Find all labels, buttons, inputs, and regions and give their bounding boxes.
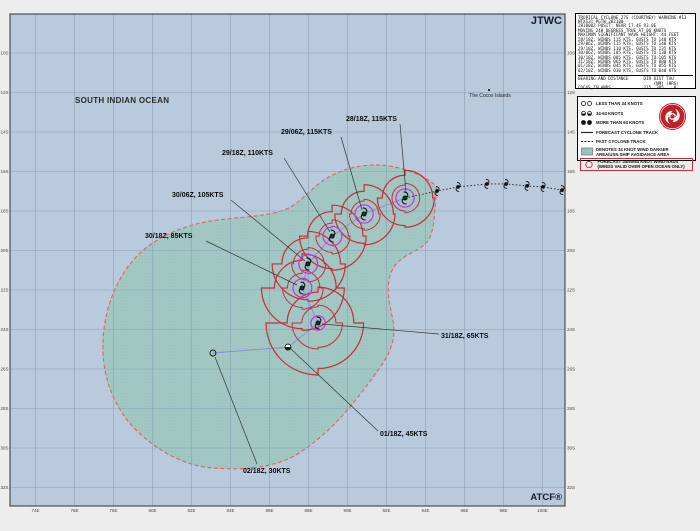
svg-text:26S: 26S bbox=[0, 367, 8, 372]
forecast-label-29/18Z: 29/18Z, 110KTS bbox=[222, 150, 273, 157]
forecast-label-29/06Z: 29/06Z, 115KTS bbox=[281, 129, 332, 136]
half-circles-icon bbox=[580, 109, 594, 118]
svg-text:22S: 22S bbox=[0, 288, 8, 293]
svg-text:10S: 10S bbox=[567, 51, 575, 56]
legend-item-label: PAST CYCLONE TRACK bbox=[596, 139, 646, 144]
svg-text:18S: 18S bbox=[0, 209, 8, 214]
forecast-label-28/18Z: 28/18Z, 115KTS bbox=[346, 116, 397, 123]
svg-text:22S: 22S bbox=[567, 288, 575, 293]
warning-lines: TROPICAL CYCLONE 27S (COURTNEY) WARNING … bbox=[578, 16, 693, 74]
jtwc-watermark: JTWC bbox=[505, 15, 562, 27]
warning-text-box: TROPICAL CYCLONE 27S (COURTNEY) WARNING … bbox=[575, 13, 696, 89]
open-circles-icon bbox=[580, 99, 594, 108]
jtwc-warning-graphic: { "map_overlays": { "jtwc": "JTWC", "atc… bbox=[0, 0, 700, 531]
filled-circles-icon bbox=[580, 118, 594, 127]
svg-text:14S: 14S bbox=[567, 130, 575, 135]
svg-text:30S: 30S bbox=[0, 446, 8, 451]
bearing-distance-lines: BEARING AND DISTANCE DIR DIST TAU (NM) (… bbox=[578, 77, 693, 90]
svg-text:24S: 24S bbox=[0, 327, 8, 332]
svg-text:86E: 86E bbox=[265, 508, 273, 513]
svg-text:82E: 82E bbox=[187, 508, 195, 513]
legend-item-label: DENOTES 34 KNOT WIND DANGER AREA/USN SHI… bbox=[596, 147, 669, 157]
jtwc-seal-icon bbox=[658, 102, 687, 131]
svg-text:88E: 88E bbox=[304, 508, 312, 513]
hatched-box-icon bbox=[580, 147, 594, 156]
svg-text:24S: 24S bbox=[567, 327, 575, 332]
svg-text:74E: 74E bbox=[31, 508, 39, 513]
legend-item-label: MORE THAN 63 KNOTS bbox=[596, 120, 644, 125]
svg-text:90E: 90E bbox=[343, 508, 351, 513]
svg-text:20S: 20S bbox=[567, 248, 575, 253]
svg-text:28S: 28S bbox=[567, 406, 575, 411]
forecast-label-01/18Z: 01/18Z, 45KTS bbox=[380, 431, 428, 438]
svg-text:96E: 96E bbox=[460, 508, 468, 513]
legend-item-label: FORECAST CYCLONE TRACK bbox=[596, 130, 658, 135]
svg-text:76E: 76E bbox=[70, 508, 78, 513]
svg-text:14S: 14S bbox=[0, 130, 8, 135]
svg-text:32S: 32S bbox=[0, 485, 8, 490]
svg-text:92E: 92E bbox=[382, 508, 390, 513]
legend-item: FORECAST 34/50/64 KNOT WIND RADII (WINDS… bbox=[580, 158, 693, 171]
legend-item: PAST CYCLONE TRACK bbox=[580, 137, 693, 146]
svg-text:18S: 18S bbox=[567, 209, 575, 214]
svg-text:12S: 12S bbox=[567, 90, 575, 95]
forecast-label-30/18Z: 30/18Z, 85KTS bbox=[145, 233, 193, 240]
svg-text:94E: 94E bbox=[421, 508, 429, 513]
cocos-islands-label: The Cocos Islands bbox=[449, 93, 531, 99]
legend-item-label: FORECAST 34/50/64 KNOT WIND RADII (WINDS… bbox=[598, 159, 685, 169]
svg-text:16S: 16S bbox=[567, 169, 575, 174]
forecast-label-31/18Z: 31/18Z, 65KTS bbox=[441, 333, 489, 340]
legend-item-label: LESS THAN 34 KNOTS bbox=[596, 101, 643, 106]
svg-text:12S: 12S bbox=[0, 90, 8, 95]
svg-text:16S: 16S bbox=[0, 169, 8, 174]
solid-line-icon bbox=[580, 128, 594, 137]
dashed-line-icon bbox=[580, 137, 594, 146]
svg-text:32S: 32S bbox=[567, 485, 575, 490]
svg-text:30S: 30S bbox=[567, 446, 575, 451]
svg-text:98E: 98E bbox=[499, 508, 507, 513]
forecast-label-02/18Z: 02/18Z, 30KTS bbox=[243, 468, 291, 475]
svg-text:28S: 28S bbox=[0, 406, 8, 411]
svg-text:10S: 10S bbox=[0, 51, 8, 56]
svg-text:26S: 26S bbox=[567, 367, 575, 372]
svg-text:20S: 20S bbox=[0, 248, 8, 253]
legend-item-label: 34-63 KNOTS bbox=[596, 111, 623, 116]
forecast-label-30/06Z: 30/06Z, 105KTS bbox=[172, 192, 224, 199]
cocos-islands-dot bbox=[488, 89, 490, 91]
ocean-label: SOUTH INDIAN OCEAN bbox=[75, 96, 169, 105]
legend-item: DENOTES 34 KNOT WIND DANGER AREA/USN SHI… bbox=[580, 147, 693, 157]
radii-circle-icon bbox=[582, 160, 596, 169]
svg-text:100E: 100E bbox=[537, 508, 548, 513]
svg-text:84E: 84E bbox=[226, 508, 234, 513]
svg-text:80E: 80E bbox=[148, 508, 156, 513]
atcf-watermark: ATCF® bbox=[500, 492, 562, 503]
svg-text:78E: 78E bbox=[109, 508, 117, 513]
